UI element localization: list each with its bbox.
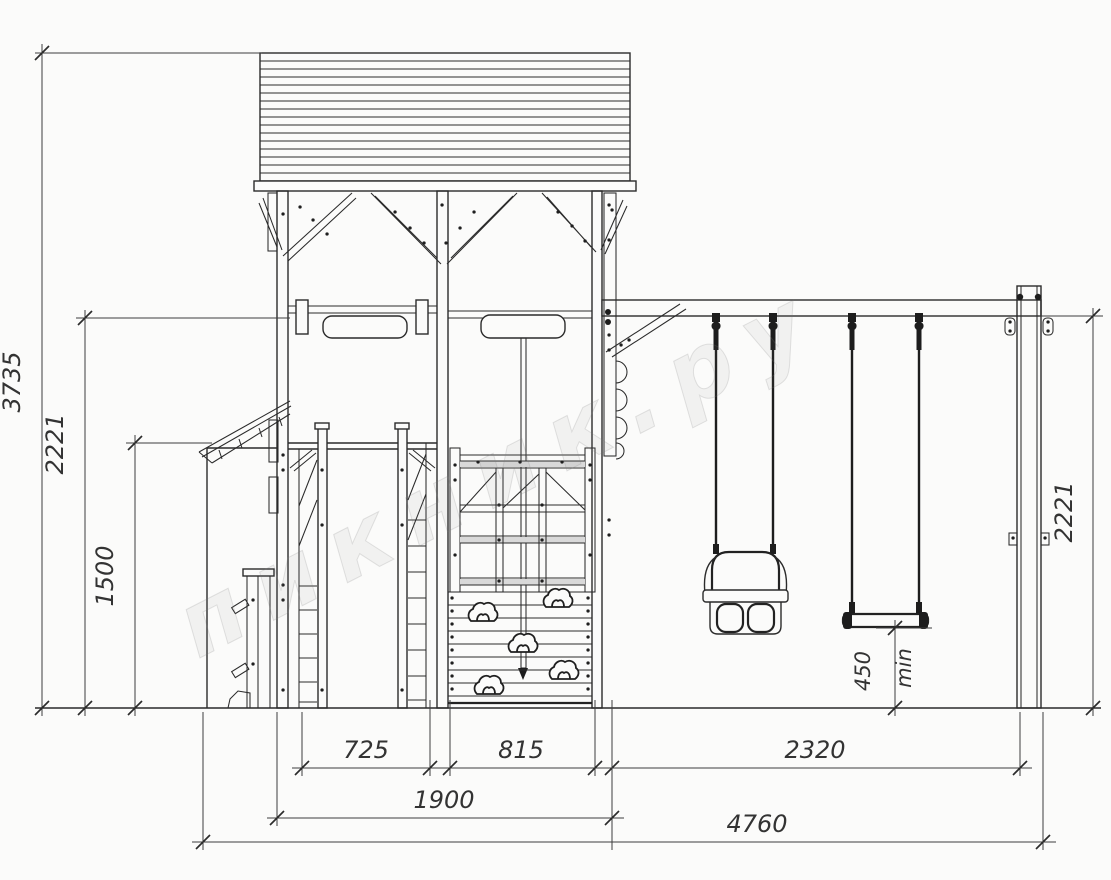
- dim-label-1900: 1900: [413, 786, 474, 814]
- flat-swing-seat: [843, 602, 928, 629]
- tower-roof: [254, 53, 636, 191]
- dim-label-2221-right: 2221: [1050, 481, 1078, 542]
- dim-label-2221-left: 2221: [41, 413, 69, 474]
- dim-label-3735: 3735: [0, 351, 26, 412]
- dim-label-4760: 4760: [726, 810, 787, 838]
- roof-truss: [259, 193, 627, 264]
- dim-label-2320: 2320: [784, 736, 845, 764]
- playground-elevation-drawing: 3735 2221 1500 2221 450 min 725 815: [0, 0, 1111, 880]
- grab-rails: [288, 300, 592, 338]
- dimension-tower-width: 1900: [267, 700, 624, 850]
- dimension-row-bays: 725 815 2320: [292, 700, 1032, 776]
- dimension-right-beam-height: 2221: [1039, 308, 1103, 716]
- swing-post: [1005, 286, 1053, 708]
- dim-label-450: 450: [851, 651, 875, 691]
- dim-label-815: 815: [498, 736, 544, 764]
- dimension-seat-clearance: 450 min: [851, 620, 932, 716]
- climbing-wall: [448, 589, 592, 703]
- baby-swing-seat: [703, 544, 788, 634]
- drawing-canvas: 3735 2221 1500 2221 450 min 725 815: [0, 0, 1111, 880]
- dim-label-min: min: [892, 648, 916, 688]
- dim-label-725: 725: [343, 736, 389, 764]
- dim-label-1500: 1500: [91, 545, 119, 606]
- dimension-total-width: 4760: [192, 712, 1056, 850]
